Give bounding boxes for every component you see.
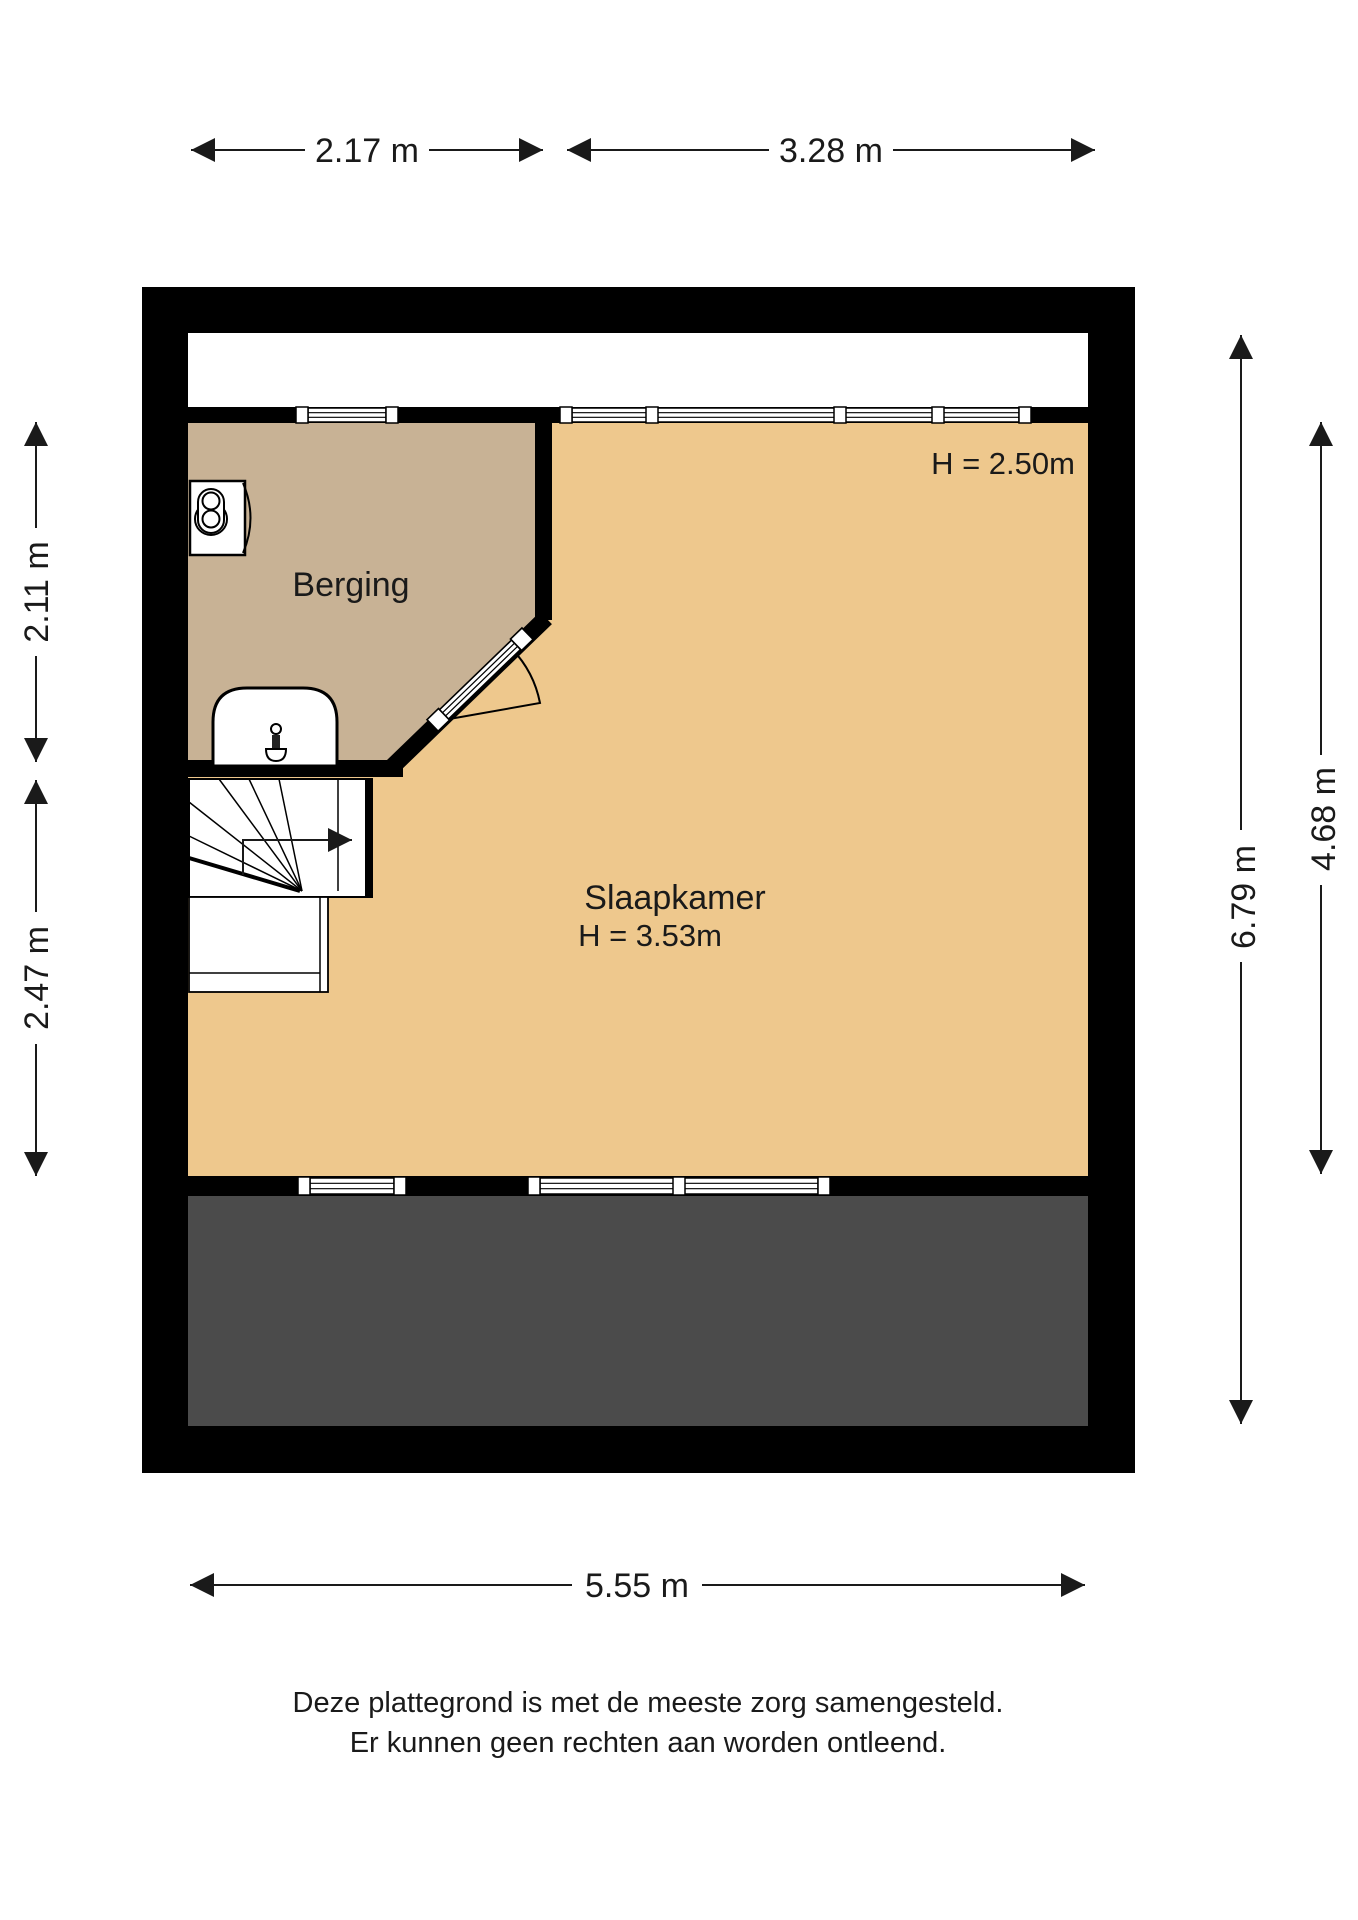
dim-label: 2.11 m: [18, 541, 56, 642]
berging-window: [296, 407, 398, 423]
dim-label: 2.17 m: [315, 132, 419, 170]
faucet-icon: [271, 724, 281, 734]
bottom-window-left: [298, 1177, 406, 1195]
bottom-window-right: [528, 1177, 830, 1195]
slaapkamer-top-window: [560, 407, 1031, 423]
berging-right-wall: [535, 407, 552, 620]
floorplan-svg: Berging Slaapkamer H = 3.53m H = 2.50m 2…: [0, 0, 1358, 1920]
toilet-icon: [213, 688, 337, 766]
stair-void: [189, 897, 328, 992]
faucet-spout: [266, 749, 286, 761]
dim-label: 3.28 m: [779, 132, 883, 170]
attic-strip: [188, 333, 1088, 407]
disclaimer-line-1: Deze plattegrond is met de meeste zorg s…: [293, 1687, 1004, 1719]
ceiling-height-label: H = 2.50m: [931, 446, 1075, 481]
terrace-floor: [188, 1196, 1088, 1426]
slaapkamer-height-label: H = 3.53m: [578, 918, 722, 953]
slaapkamer-label: Slaapkamer: [584, 879, 765, 917]
disclaimer-line-2: Er kunnen geen rechten aan worden ontlee…: [350, 1727, 947, 1759]
stair-upper-flight: [189, 779, 372, 897]
top-wall: [188, 407, 1088, 423]
stair-right-border: [365, 779, 372, 897]
boiler-icon: [190, 481, 251, 555]
berging-label: Berging: [292, 566, 409, 604]
bottom-wall: [188, 1176, 1088, 1196]
floorplan-page: Berging Slaapkamer H = 3.53m H = 2.50m 2…: [0, 0, 1358, 1920]
faucet-stem: [272, 735, 280, 749]
dim-label: 5.55 m: [585, 1567, 689, 1605]
dim-label: 2.47 m: [18, 926, 56, 1030]
dim-label: 4.68 m: [1305, 767, 1343, 871]
dim-label: 6.79 m: [1225, 845, 1263, 949]
